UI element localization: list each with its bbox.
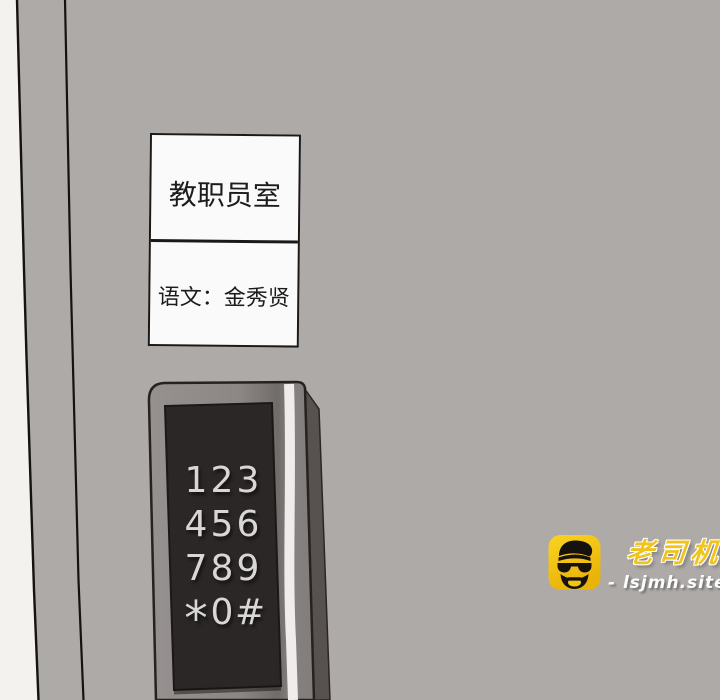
keypad-highlight-stripe xyxy=(289,384,293,700)
key-2: 2 xyxy=(209,459,235,503)
key-star: * xyxy=(179,591,213,648)
key-hash: # xyxy=(235,591,261,635)
site-watermark: 老司机 - lsjmh.site - xyxy=(548,531,720,593)
watermark-site-text: - lsjmh.site - xyxy=(608,573,720,593)
keypad-digit-grid: 123 456 789 *0# xyxy=(160,459,284,635)
key-3: 3 xyxy=(235,459,261,503)
door-scene-artwork xyxy=(0,0,720,700)
door-frame-line-inner xyxy=(65,0,84,700)
driver-face-icon xyxy=(548,534,601,591)
key-5: 5 xyxy=(209,503,235,547)
key-4: 4 xyxy=(183,503,209,547)
watermark-brand-text: 老司机 xyxy=(606,531,720,570)
sign-teacher-name: 语文：金秀贤 xyxy=(150,242,298,343)
key-1: 1 xyxy=(183,459,209,503)
key-6: 6 xyxy=(235,503,261,547)
keypad-row-2: 456 xyxy=(160,503,284,547)
faculty-sign: 教职员室 语文：金秀贤 xyxy=(148,133,301,348)
keypad-row-4: *0# xyxy=(160,591,284,635)
keypad-row-1: 123 xyxy=(160,459,284,503)
comic-panel: 教职员室 语文：金秀贤 123 456 789 *0# xyxy=(0,0,720,700)
watermark-texts: 老司机 - lsjmh.site - xyxy=(608,531,720,593)
key-7: 7 xyxy=(183,547,209,591)
sign-room-name: 教职员室 xyxy=(151,135,299,244)
key-9: 9 xyxy=(235,547,261,591)
keypad-row-3: 789 xyxy=(160,547,284,591)
key-8: 8 xyxy=(209,547,235,591)
